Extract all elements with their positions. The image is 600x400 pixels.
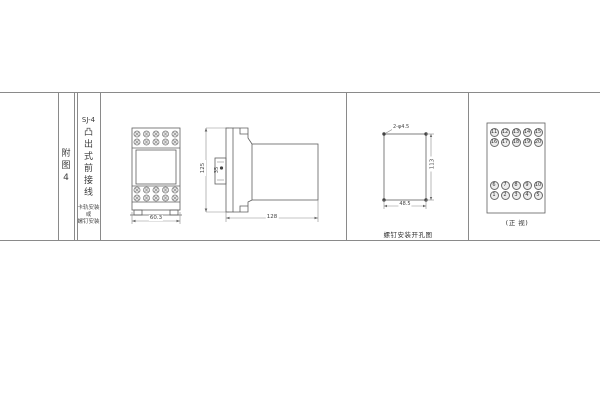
front-screws bbox=[134, 131, 178, 201]
terminal-pin: 1 bbox=[490, 191, 499, 200]
terminal-pin: 4 bbox=[523, 191, 532, 200]
band-bottom-rule bbox=[0, 240, 600, 241]
relay-case bbox=[252, 144, 318, 200]
terminal-pin: 19 bbox=[523, 138, 532, 147]
terminal-pin: 11 bbox=[490, 128, 499, 137]
left-foot bbox=[134, 210, 142, 215]
faceplate-window bbox=[136, 150, 176, 184]
terminal-pin: 3 bbox=[512, 191, 521, 200]
terminal-pin: 15 bbox=[534, 128, 543, 137]
terminal-pin: 5 bbox=[534, 191, 543, 200]
model-description: 凸出式前接线 bbox=[84, 127, 93, 199]
drill-height-dim-label: 113 bbox=[430, 157, 436, 172]
front-width-dim-label: 60.3 bbox=[149, 215, 163, 221]
divider-views bbox=[346, 92, 347, 240]
terminal-pin: 9 bbox=[523, 181, 532, 190]
side-boss-dim-label: 35 bbox=[214, 164, 220, 176]
right-foot bbox=[170, 210, 178, 215]
divider-figure-1 bbox=[74, 92, 75, 240]
mounting-note-line: 或 bbox=[77, 212, 99, 219]
terminal-pin: 13 bbox=[512, 128, 521, 137]
terminal-grid: 1112131415161718192067891012345 bbox=[483, 119, 551, 227]
terminal-pin: 16 bbox=[490, 138, 499, 147]
hole-centerline-rect bbox=[384, 134, 426, 200]
mounting-note-line: 螺钉安装 bbox=[77, 219, 99, 226]
figure-index-column: 附图4 bbox=[58, 92, 74, 240]
boss-screw bbox=[220, 166, 223, 169]
drill-pattern-drawing: 2-φ4.5 113 48.5 螺钉安装开孔图 bbox=[376, 126, 440, 244]
figure-index-label: 附图4 bbox=[61, 148, 70, 184]
drill-linework bbox=[376, 126, 440, 244]
mounting-flange bbox=[226, 128, 233, 212]
divider-terminal bbox=[468, 92, 469, 240]
terminal-pin: 20 bbox=[534, 138, 543, 147]
terminal-pin: 18 bbox=[512, 138, 521, 147]
top-clip bbox=[233, 128, 252, 144]
terminal-pin: 6 bbox=[490, 181, 499, 190]
model-label: SJ-4 bbox=[82, 116, 95, 124]
terminal-layout-drawing: 1112131415161718192067891012345 (正 视) bbox=[483, 119, 551, 227]
model-title-column: SJ-4 凸出式前接线 卡轨安装 或 螺钉安装 bbox=[77, 92, 100, 240]
side-depth-dim-label: 128 bbox=[266, 214, 279, 220]
terminal-pin: 14 bbox=[523, 128, 532, 137]
terminal-caption: (正 视) bbox=[483, 217, 551, 227]
side-height-dim-label: 125 bbox=[200, 160, 206, 176]
terminal-pin: 2 bbox=[501, 191, 510, 200]
terminal-pin: 7 bbox=[501, 181, 510, 190]
mounting-note: 卡轨安装 或 螺钉安装 bbox=[77, 205, 99, 226]
drawing-sheet: 附图4 SJ-4 凸出式前接线 卡轨安装 或 螺钉安装 bbox=[0, 0, 600, 400]
side-view-drawing: 125 35 128 bbox=[196, 118, 326, 230]
drill-holes-label: 2-φ4.5 bbox=[392, 124, 410, 130]
terminal-pin: 17 bbox=[501, 138, 510, 147]
drill-hole bbox=[382, 132, 385, 135]
mounting-note-line: 卡轨安装 bbox=[77, 205, 99, 212]
drill-caption: 螺钉安装开孔图 bbox=[376, 229, 440, 239]
front-view-drawing: 60.3 bbox=[128, 124, 188, 228]
divider-title bbox=[100, 92, 101, 240]
drill-width-dim-label: 48.5 bbox=[398, 201, 411, 207]
terminal-pin: 8 bbox=[512, 181, 521, 190]
front-view-linework bbox=[128, 124, 188, 228]
terminal-pin: 12 bbox=[501, 128, 510, 137]
terminal-pin: 10 bbox=[534, 181, 543, 190]
